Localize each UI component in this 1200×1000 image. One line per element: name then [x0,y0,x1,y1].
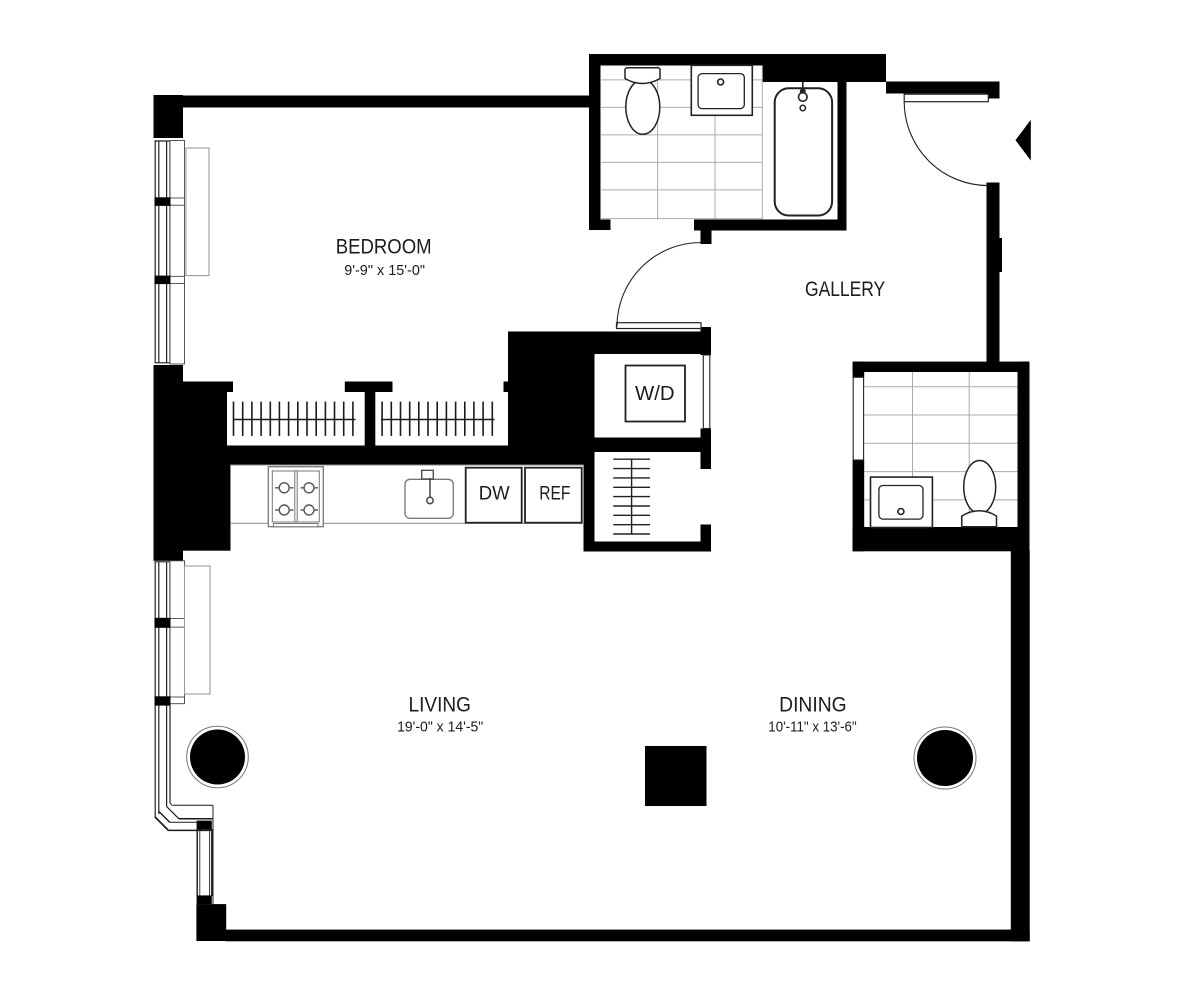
svg-text:9'-9" x 15'-0": 9'-9" x 15'-0" [344,262,425,279]
svg-text:REF: REF [539,484,570,505]
svg-text:10'-11" x 13'-6": 10'-11" x 13'-6" [768,719,856,736]
svg-text:GALLERY: GALLERY [805,278,885,301]
svg-text:DINING: DINING [779,694,847,717]
svg-text:BEDROOM: BEDROOM [336,235,432,258]
svg-text:W/D: W/D [635,383,675,405]
svg-text:LIVING: LIVING [409,694,471,717]
svg-text:19'-0" x 14'-5": 19'-0" x 14'-5" [397,719,483,736]
svg-text:DW: DW [479,484,510,505]
